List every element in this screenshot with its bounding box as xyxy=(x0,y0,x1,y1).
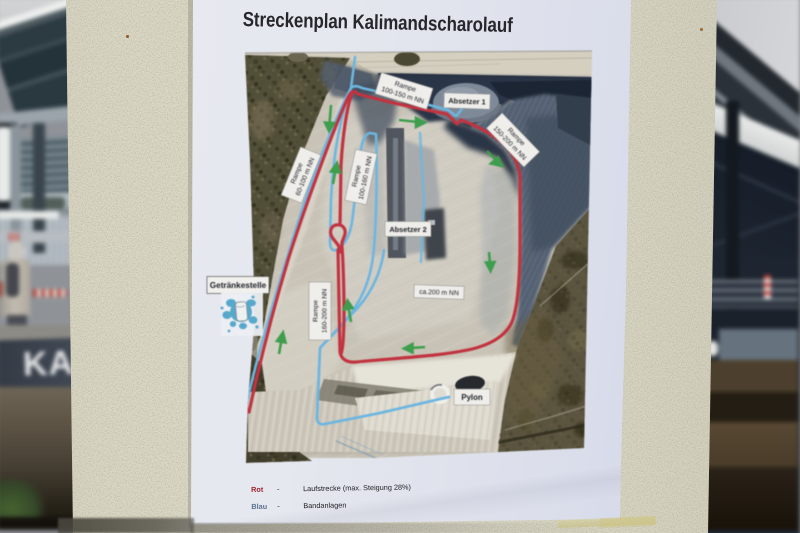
svg-text:160-200 m NN: 160-200 m NN xyxy=(322,289,329,333)
svg-text:Absetzer 1: Absetzer 1 xyxy=(448,96,486,106)
svg-text:Getränkestelle: Getränkestelle xyxy=(210,281,267,290)
svg-text:Absetzer 2: Absetzer 2 xyxy=(389,225,426,234)
svg-text:Pylon: Pylon xyxy=(461,393,482,402)
svg-text:ca.200 m NN: ca.200 m NN xyxy=(419,289,459,297)
svg-text:Rampe: Rampe xyxy=(313,300,320,322)
